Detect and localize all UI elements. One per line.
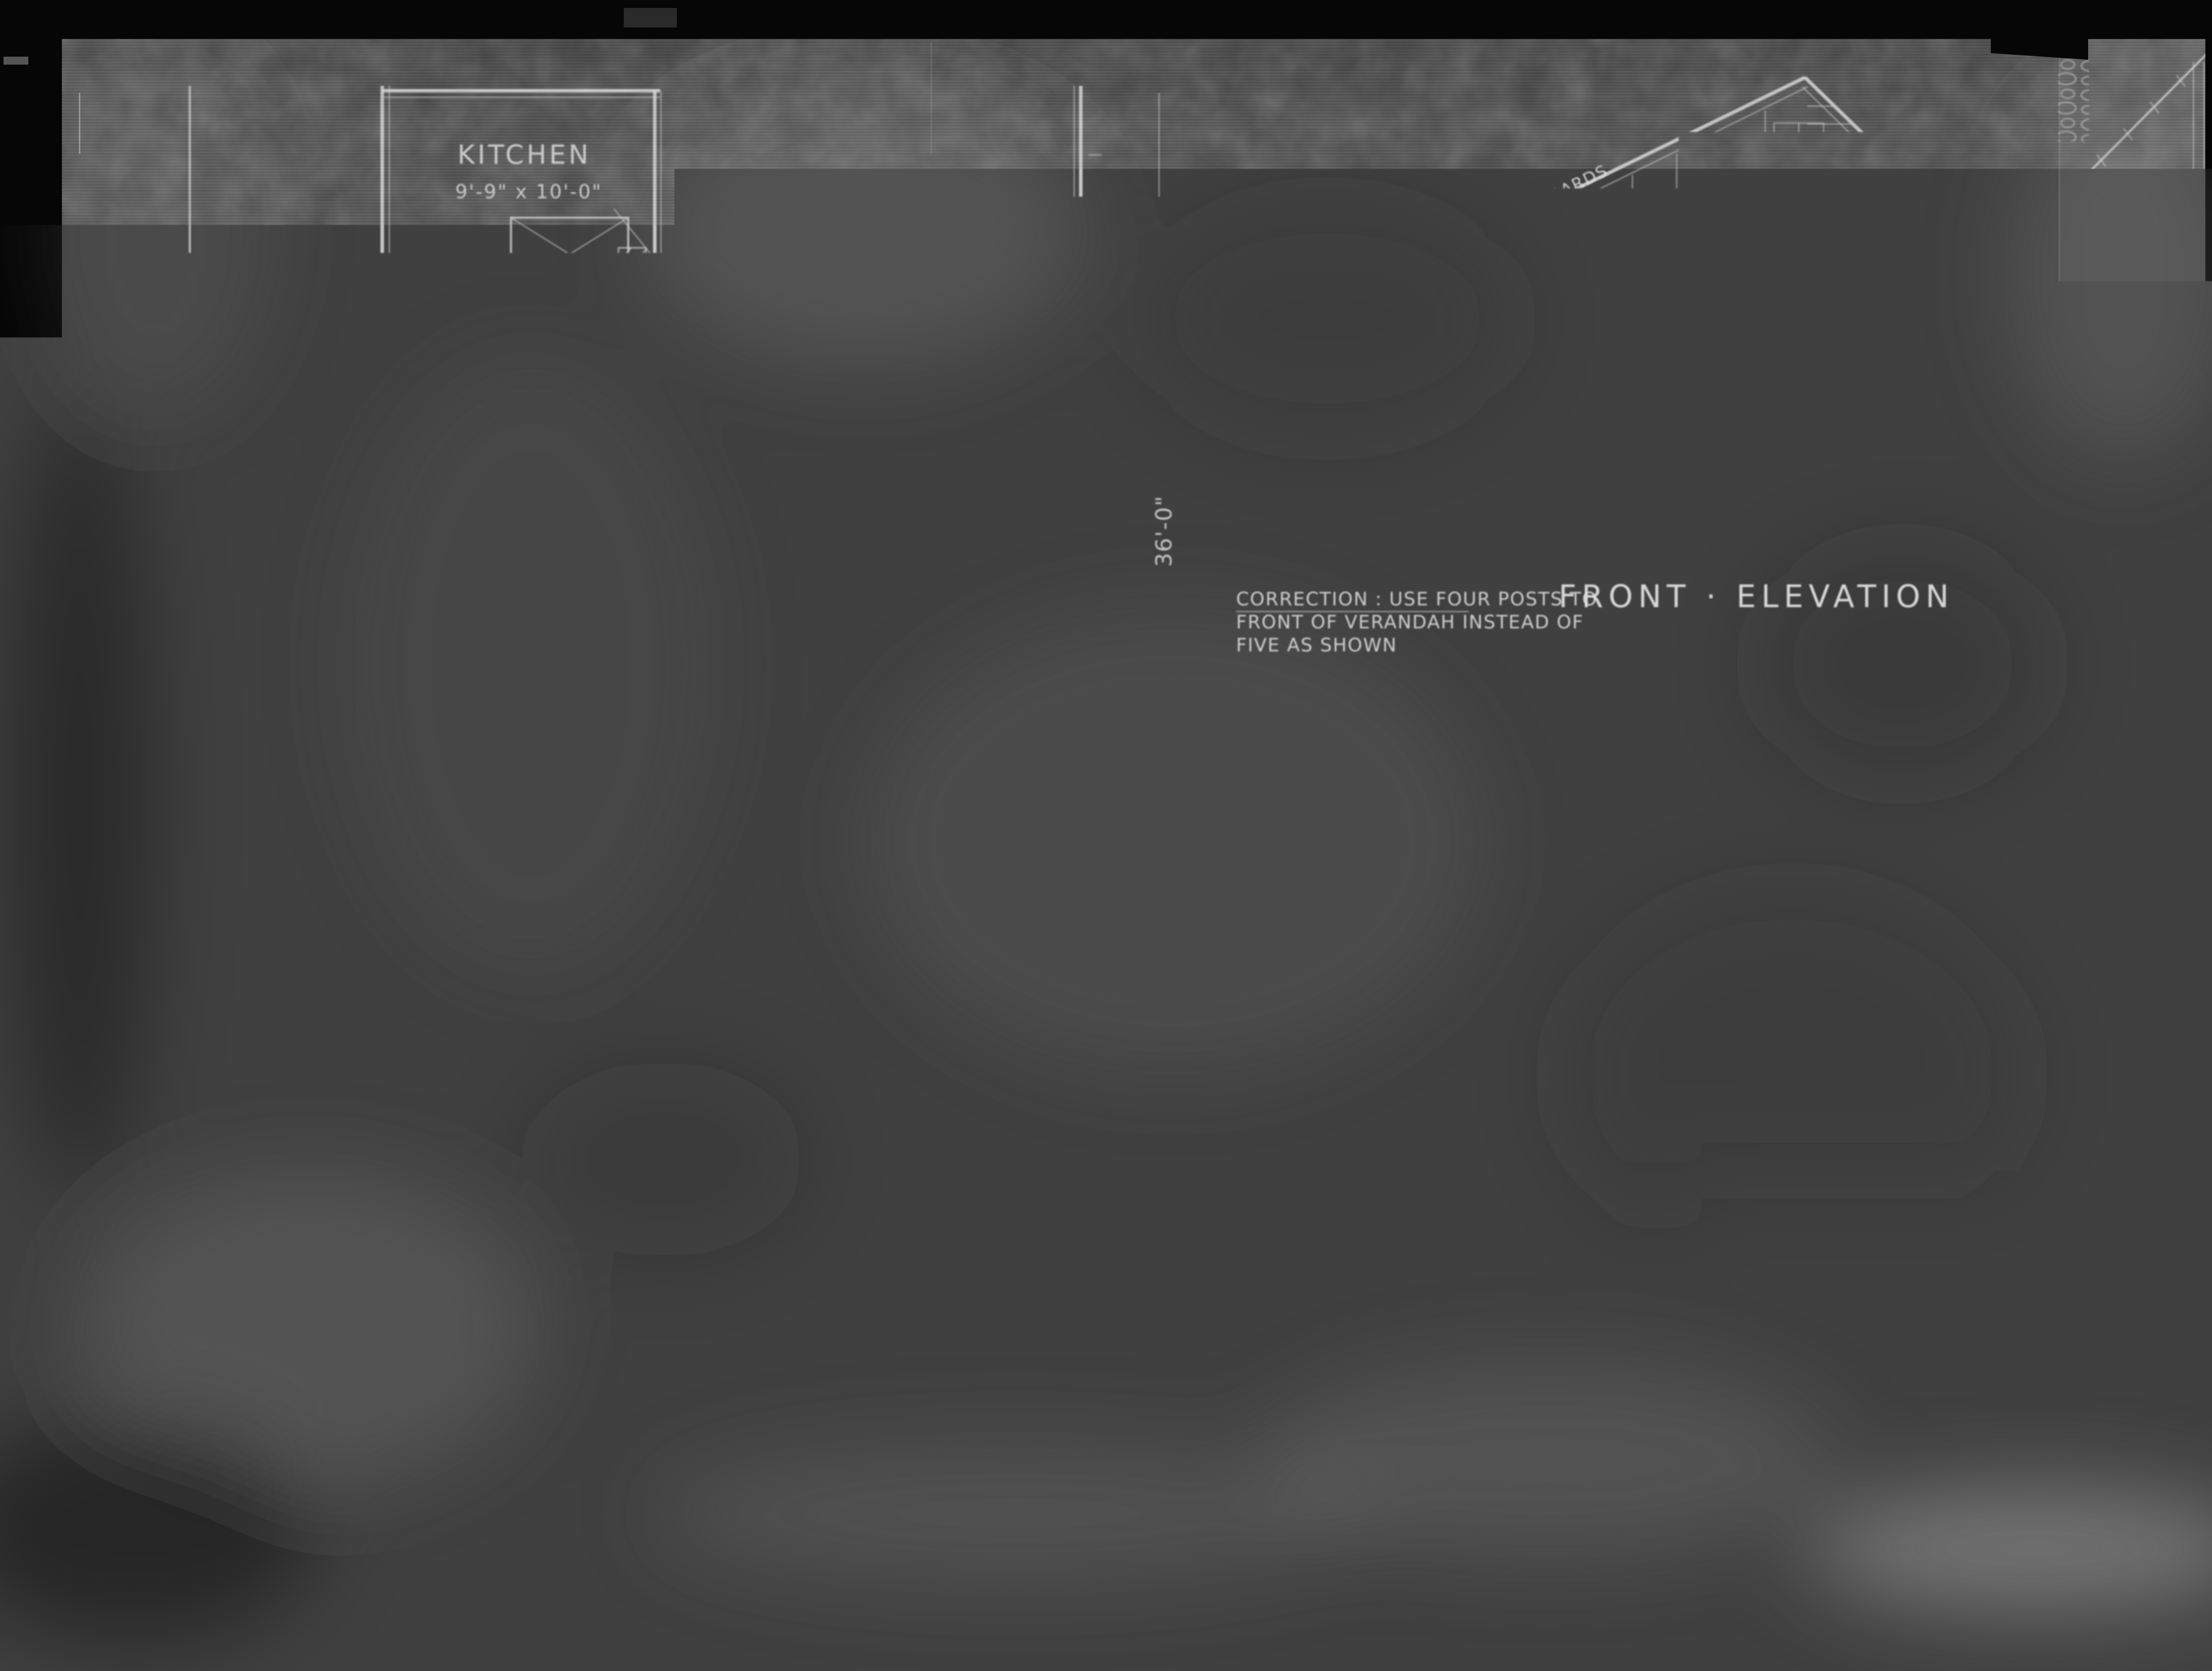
- page-stamp-text: 3 of/de: [1993, 1537, 2080, 1570]
- page-stamp-slip: 3 of/de: [1991, 1530, 2082, 1577]
- blueprint-canvas: KITCHEN 9'-9" x 10'-0" BED ROOM 9'-9" x …: [0, 0, 2212, 1671]
- scanline-overlay: [0, 0, 2212, 1671]
- repeat-stamp-line2: Répétition: [2000, 1620, 2117, 1642]
- blueprint-photo: KITCHEN 9'-9" x 10'-0" BED ROOM 9'-9" x …: [0, 0, 2212, 1671]
